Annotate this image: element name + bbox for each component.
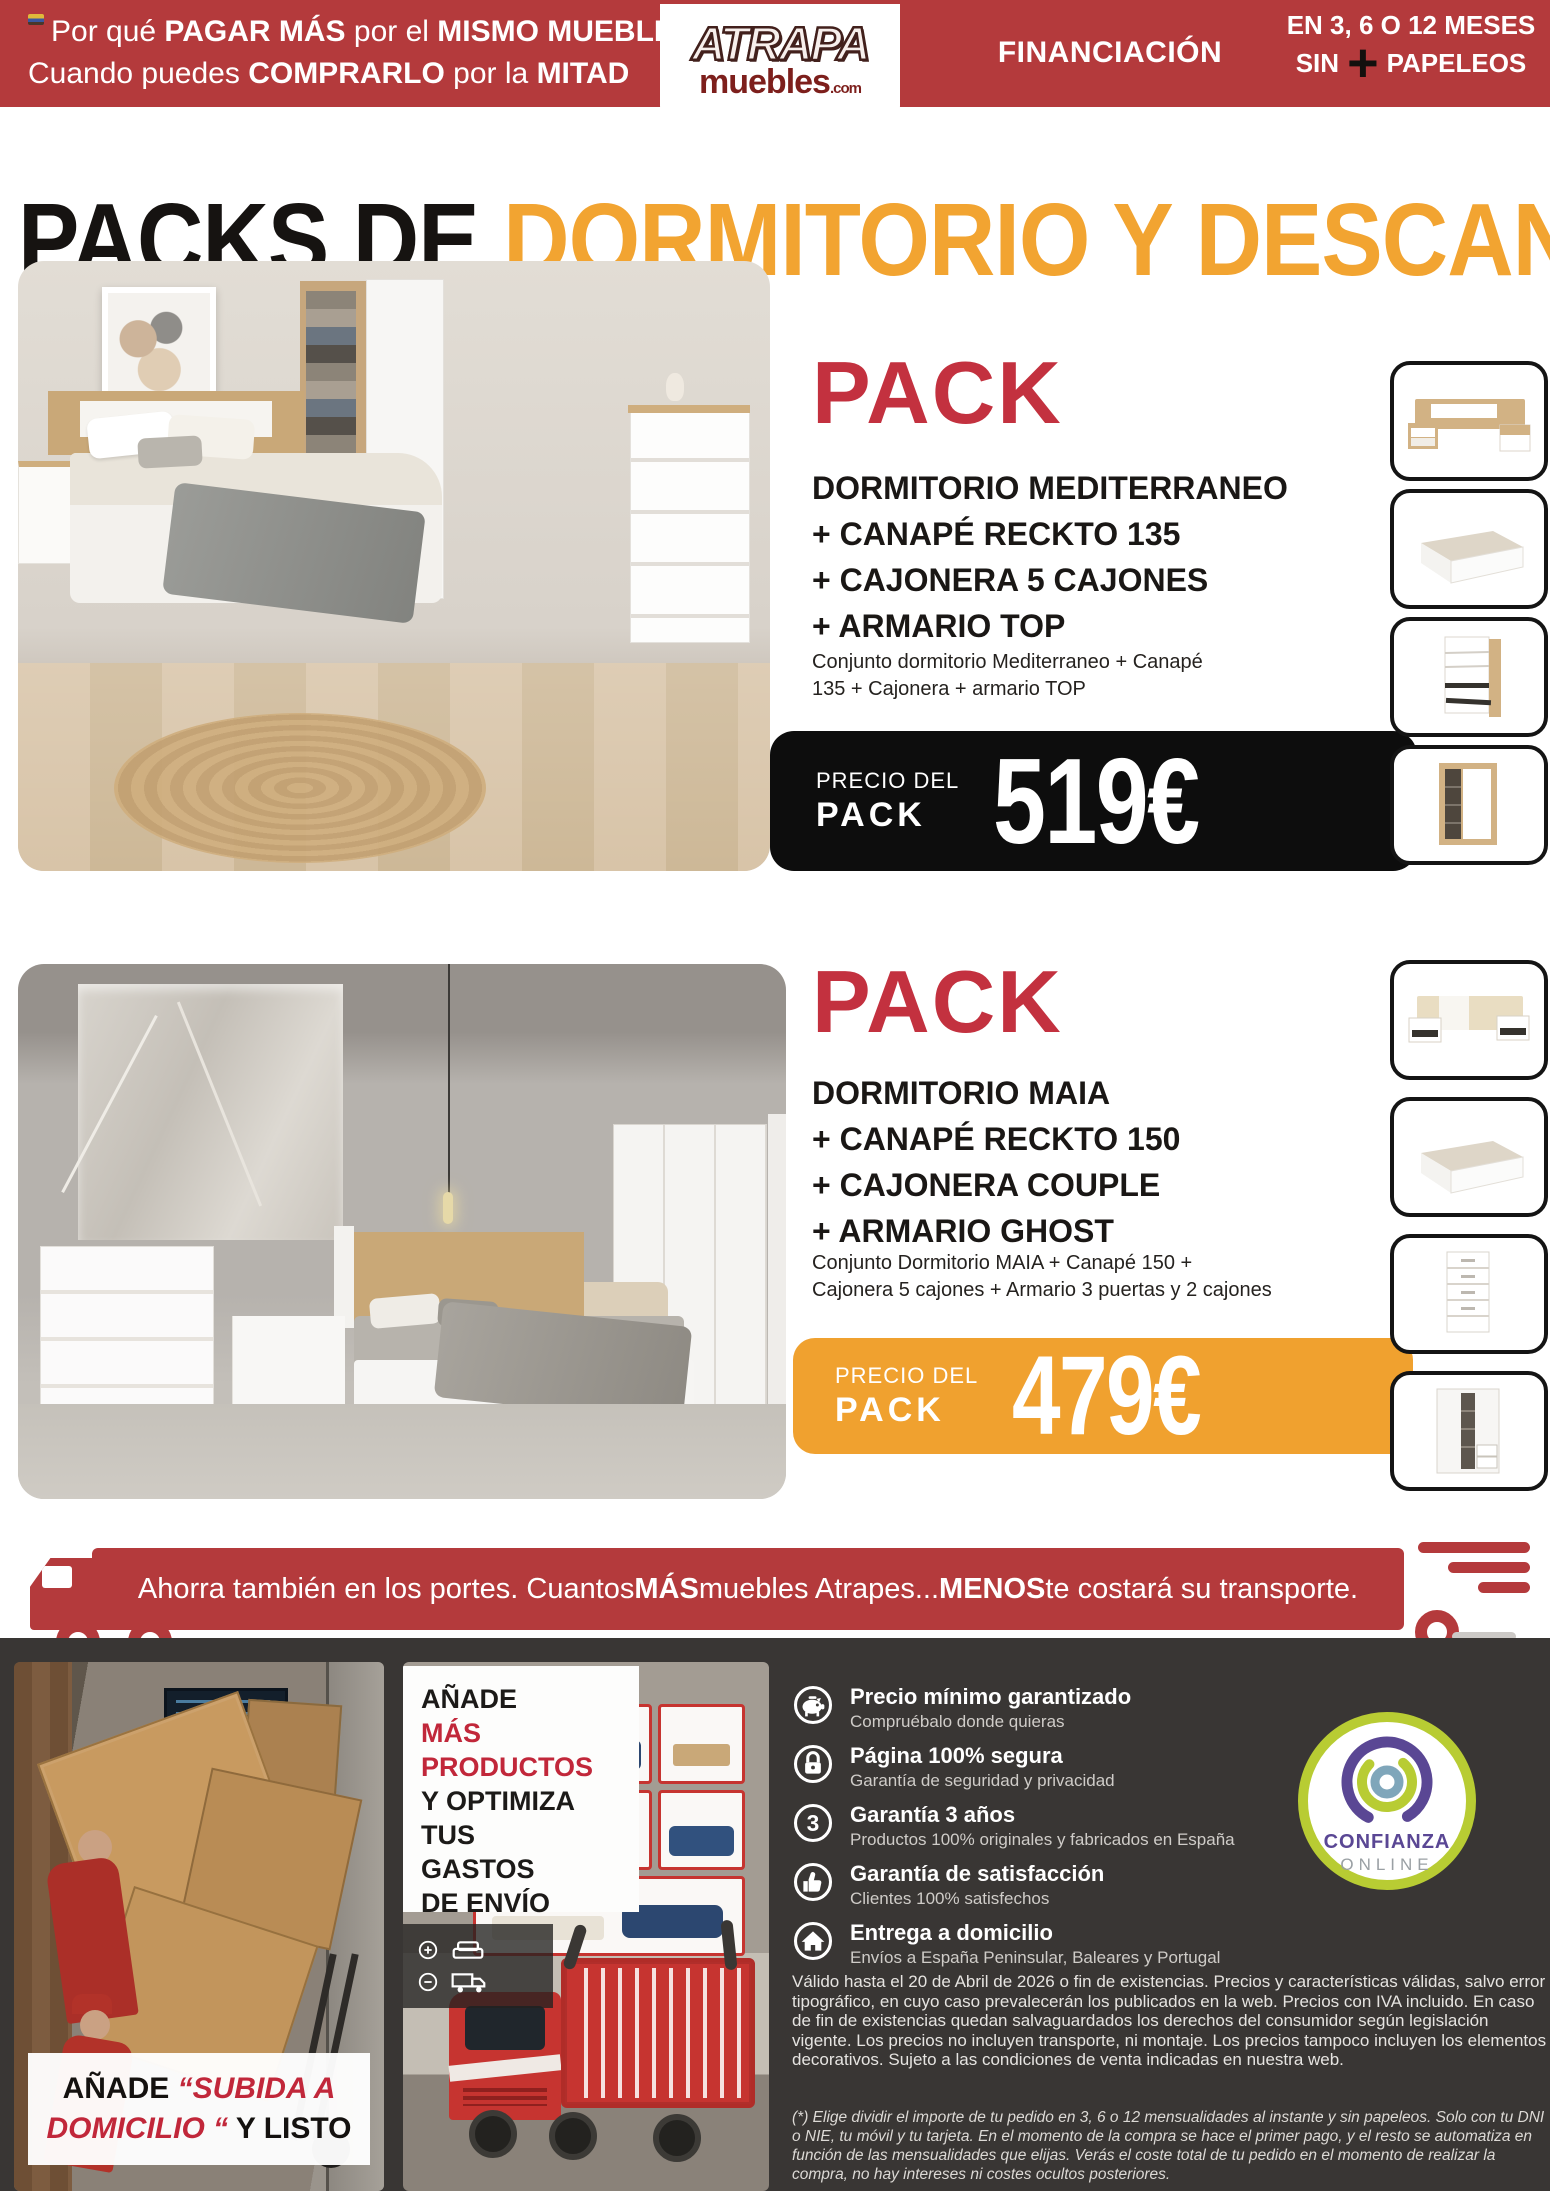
marble-panel [78,984,343,1240]
thumbnail-armario [1390,745,1548,865]
pack-section-mediterraneo: PACK DORMITORIO MEDITERRANEO + CANAPÉ RE… [0,261,1550,877]
installments-info: EN 3, 6 O 12 MESES SIN + PAPELEOS [1282,10,1540,81]
pack-1-description-line: 135 + Cajonera + armario TOP [812,676,1203,703]
thumbnail-headboard-floating-nightstands [1390,960,1548,1080]
cage-slats [571,1968,745,2098]
round-jute-rug [114,713,486,863]
feature-title: Precio mínimo garantizado [850,1684,1131,1709]
truck-wheel-dark [653,2114,701,2162]
price-label: PRECIO DEL PACK [816,768,959,835]
headboard-side-panel [334,1226,354,1328]
tagline-line-2: Cuando puedes COMPRARLO por la MITAD [28,53,674,95]
tagline-text: por la [445,57,537,90]
windshield [465,2006,545,2050]
feature-title: Garantía de satisfacción [850,1861,1104,1886]
thumbnail-cajonera [1390,617,1548,737]
padlock-icon [792,1743,834,1785]
pendant-bulb [443,1192,453,1224]
trust-badge-line-1: CONFIANZA [1324,1831,1451,1853]
delivery-truck-icon [451,1970,487,1994]
promo-line-red: PRODUCTOS [421,1750,639,1784]
tagline-bold: PAGAR MÁS [164,15,345,48]
pack-section-maia: PACK DORMITORIO MAIA + CANAPÉ RECKTO 150… [0,958,1550,1503]
plus-circle-icon [417,1939,439,1961]
header-tagline: Por qué PAGAR MÁS por el MISMO MUEBLE Cu… [28,11,674,95]
feature-satisfaction: Garantía de satisfacción Clientes 100% s… [792,1861,1322,1909]
feature-min-price: Precio mínimo garantizado Compruébalo do… [792,1684,1322,1732]
thumbs-up-icon [792,1861,834,1903]
pack-1-description-line: Conjunto dormitorio Mediterraneo + Canap… [812,649,1203,676]
confianza-online-badge: CONFIANZA ONLINE [1296,1710,1478,1892]
add-furniture-row [417,1939,553,1961]
minus-circle-icon [417,1971,439,1993]
thumbnail-armario-ghost [1390,1371,1548,1491]
tagline-bold: COMPRARLO [248,57,445,90]
installments-papeleos: PAPELEOS [1387,48,1527,79]
tagline-text: Por qué [51,15,164,48]
furniture-box [658,1790,745,1870]
installments-line-2: SIN + PAPELEOS [1282,45,1540,81]
cajonera-thumb-art [1403,629,1535,725]
pack-1-item-line: + CANAPÉ RECKTO 135 [812,511,1288,557]
pack-2-label: PACK [812,958,1063,1046]
shipping-text: te costará su transporte. [1045,1573,1358,1606]
truck-wheel-dark [469,2110,517,2158]
plus-icon: + [1347,45,1379,81]
sofa-icon [451,1939,485,1961]
shipping-text-bold: MÁS [634,1573,698,1606]
pack-1-item-line: DORMITORIO MEDITERRANEO [812,465,1288,511]
catalog-page: Por qué PAGAR MÁS por el MISMO MUEBLE Cu… [0,0,1550,2191]
pack-1-label: PACK [812,349,1063,437]
feature-subtitle: Garantía de seguridad y privacidad [850,1771,1115,1791]
thumbnail-headboard-nightstands [1390,361,1548,481]
guarantees-list: Precio mínimo garantizado Compruébalo do… [792,1684,1322,1968]
shipping-text: muebles Atrapes... [699,1573,939,1606]
armario-thumb-art [1403,1383,1535,1479]
feature-subtitle: Envíos a España Peninsular, Baleares y P… [850,1948,1220,1968]
caption-text: AÑADE [63,2072,178,2105]
wardrobe-sliver [768,1114,786,1414]
price-label-line-1: PRECIO DEL [835,1363,978,1389]
price-label: PRECIO DEL PACK [835,1363,978,1430]
price-label-line-1: PRECIO DEL [816,768,959,794]
price-label-line-2: PACK [835,1391,978,1430]
feature-3-year-warranty: 3 Garantía 3 años Productos 100% origina… [792,1802,1322,1850]
feature-texts: Garantía de satisfacción Clientes 100% s… [850,1861,1104,1909]
logo-tld-text: .com [830,80,861,97]
caption-text: Y LISTO [228,2112,351,2145]
feature-texts: Página 100% segura Garantía de seguridad… [850,1743,1115,1791]
caption-quoted: DOMICILIO “ [46,2112,228,2145]
promo-line: DE ENVÍO [421,1886,639,1920]
confianza-online-logo: CONFIANZA ONLINE [1296,1710,1478,1892]
thumbnail-cajonera-couple [1390,1234,1548,1354]
truck-window [42,1566,72,1588]
financing-label: FINANCIACIÓN [960,36,1260,70]
thumbnail-canape-base [1390,489,1548,609]
logo-muebles-text: muebles [699,63,830,101]
pack-2-price: 479€ [1012,1340,1200,1452]
pack-1-items: DORMITORIO MEDITERRANEO + CANAPÉ RECKTO … [812,465,1288,649]
optimize-shipping-photo: AÑADE MÁS PRODUCTOS Y OPTIMIZA TUS GASTO… [403,1662,769,2191]
feature-home-delivery: Entrega a domicilio Envíos a España Peni… [792,1920,1322,1968]
cajonera-thumb-art [1403,1246,1535,1342]
promo-line: TUS [421,1818,639,1852]
delivery-elevator-photo: AÑADE “SUBIDA A DOMICILIO “ Y LISTO [14,1662,384,2191]
feature-secure-site: Página 100% segura Garantía de seguridad… [792,1743,1322,1791]
tagline-text: por el [346,15,438,48]
pendant-cord [448,964,450,1194]
pack-1-description: Conjunto dormitorio Mediterraneo + Canap… [812,649,1203,703]
promo-line: Y OPTIMIZA [421,1784,639,1818]
feature-texts: Precio mínimo garantizado Compruébalo do… [850,1684,1131,1732]
feature-title: Página 100% segura [850,1743,1115,1768]
home-icon [792,1920,834,1962]
middle-promo-text: AÑADE MÁS PRODUCTOS Y OPTIMIZA TUS GASTO… [403,1666,639,1912]
installments-line-1: EN 3, 6 O 12 MESES [1282,10,1540,41]
truck-cab [30,1558,98,1630]
pack-1-price-banner: PRECIO DEL PACK 519€ [770,731,1417,871]
feature-subtitle: Clientes 100% satisfechos [850,1889,1104,1909]
chest-top-oak [628,405,750,413]
caption-quoted: “SUBIDA A [178,2072,336,2105]
armario-thumb-art [1403,757,1535,853]
pack-2-item-line: + CAJONERA COUPLE [812,1162,1180,1208]
truck-wheel-dark [549,2112,597,2160]
vase [666,373,684,401]
promo-line-red: MÁS [421,1716,639,1750]
promo-line: AÑADE [421,1682,639,1716]
svg-text:3: 3 [807,1810,820,1836]
floor [18,1404,786,1499]
financing-footnote: (*) Elige dividir el importe de tu pedid… [792,2108,1548,2184]
canape-thumb-art [1403,501,1535,597]
pack-2-item-line: DORMITORIO MAIA [812,1070,1180,1116]
pack-2-items: DORMITORIO MAIA + CANAPÉ RECKTO 150 + CA… [812,1070,1180,1254]
canape-thumb-art [1403,1109,1535,1205]
feature-texts: Entrega a domicilio Envíos a España Peni… [850,1920,1220,1968]
legal-text: Válido hasta el 20 de Abril de 2026 o fi… [792,1972,1548,2070]
shipping-text: Ahorra también en los portes. Cuantos [138,1573,635,1606]
installments-sin: SIN [1296,48,1339,79]
cursor-flag-icon [28,14,44,25]
add-remove-icons-chip [403,1924,553,2008]
pack-2-price-banner: PRECIO DEL PACK 479€ [793,1338,1413,1454]
sofa-in-box [669,1826,734,1856]
pack-2-item-line: + CANAPÉ RECKTO 150 [812,1116,1180,1162]
pack-1-price: 519€ [993,740,1198,862]
shipping-text-bold: MENOS [939,1573,1045,1606]
pack-2-description-line: Conjunto Dormitorio MAIA + Canapé 150 + [812,1250,1272,1277]
speed-line [1418,1542,1530,1553]
remove-shipping-row [417,1970,553,1994]
furniture-box [658,1704,745,1784]
pack-2-description: Conjunto Dormitorio MAIA + Canapé 150 + … [812,1250,1272,1304]
number-3-icon: 3 [792,1802,834,1844]
piggy-bank-icon [792,1684,834,1726]
pack-1-bedroom-photo [18,261,770,871]
truck-cargo-cage [561,1958,755,2108]
pillow-gray [137,435,202,468]
pillow [369,1293,441,1329]
grill [463,2088,547,2106]
left-promo-caption: AÑADE “SUBIDA A DOMICILIO “ Y LISTO [28,2053,370,2165]
price-label-line-2: PACK [816,796,959,835]
feature-title: Garantía 3 años [850,1802,1235,1827]
pack-2-bedroom-photo [18,964,786,1499]
pack-2-item-line: + ARMARIO GHOST [812,1208,1180,1254]
tagline-line-1: Por qué PAGAR MÁS por el MISMO MUEBLE [28,11,674,53]
truck-cab-red [449,1992,561,2120]
thumbnail-canape-base [1390,1097,1548,1217]
feature-title: Entrega a domicilio [850,1920,1220,1945]
table-in-box [673,1744,729,1766]
pack-2-description-line: Cajonera 5 cajones + Armario 3 puertas y… [812,1277,1272,1304]
white-stripe [448,2054,561,2082]
feature-texts: Garantía 3 años Productos 100% originale… [850,1802,1235,1850]
speed-line [1448,1562,1530,1573]
trust-badge-line-2: ONLINE [1340,1855,1433,1874]
pack-1-item-line: + ARMARIO TOP [812,603,1288,649]
truck-body-banner: Ahorra también en los portes. Cuantos MÁ… [92,1548,1404,1630]
headboard-thumb-art [1403,373,1535,469]
speed-line [1478,1582,1530,1593]
pack-1-item-line: + CAJONERA 5 CAJONES [812,557,1288,603]
feature-subtitle: Compruébalo donde quieras [850,1712,1131,1732]
feature-subtitle: Productos 100% originales y fabricados e… [850,1830,1235,1850]
headboard-thumb-art [1403,972,1535,1068]
tagline-bold: MITAD [537,57,630,90]
footer-section: AÑADE “SUBIDA A DOMICILIO “ Y LISTO [0,1638,1550,2191]
chest-of-drawers [630,409,750,643]
promo-line: GASTOS [421,1852,639,1886]
tagline-text: Cuando puedes [28,57,248,90]
logo-word-muebles: muebles.com [699,63,861,102]
tagline-bold: MISMO MUEBLE [437,15,674,48]
atrapa-muebles-logo: ATRAPA muebles.com [660,4,900,114]
header-bar: Por qué PAGAR MÁS por el MISMO MUEBLE Cu… [0,0,1550,107]
